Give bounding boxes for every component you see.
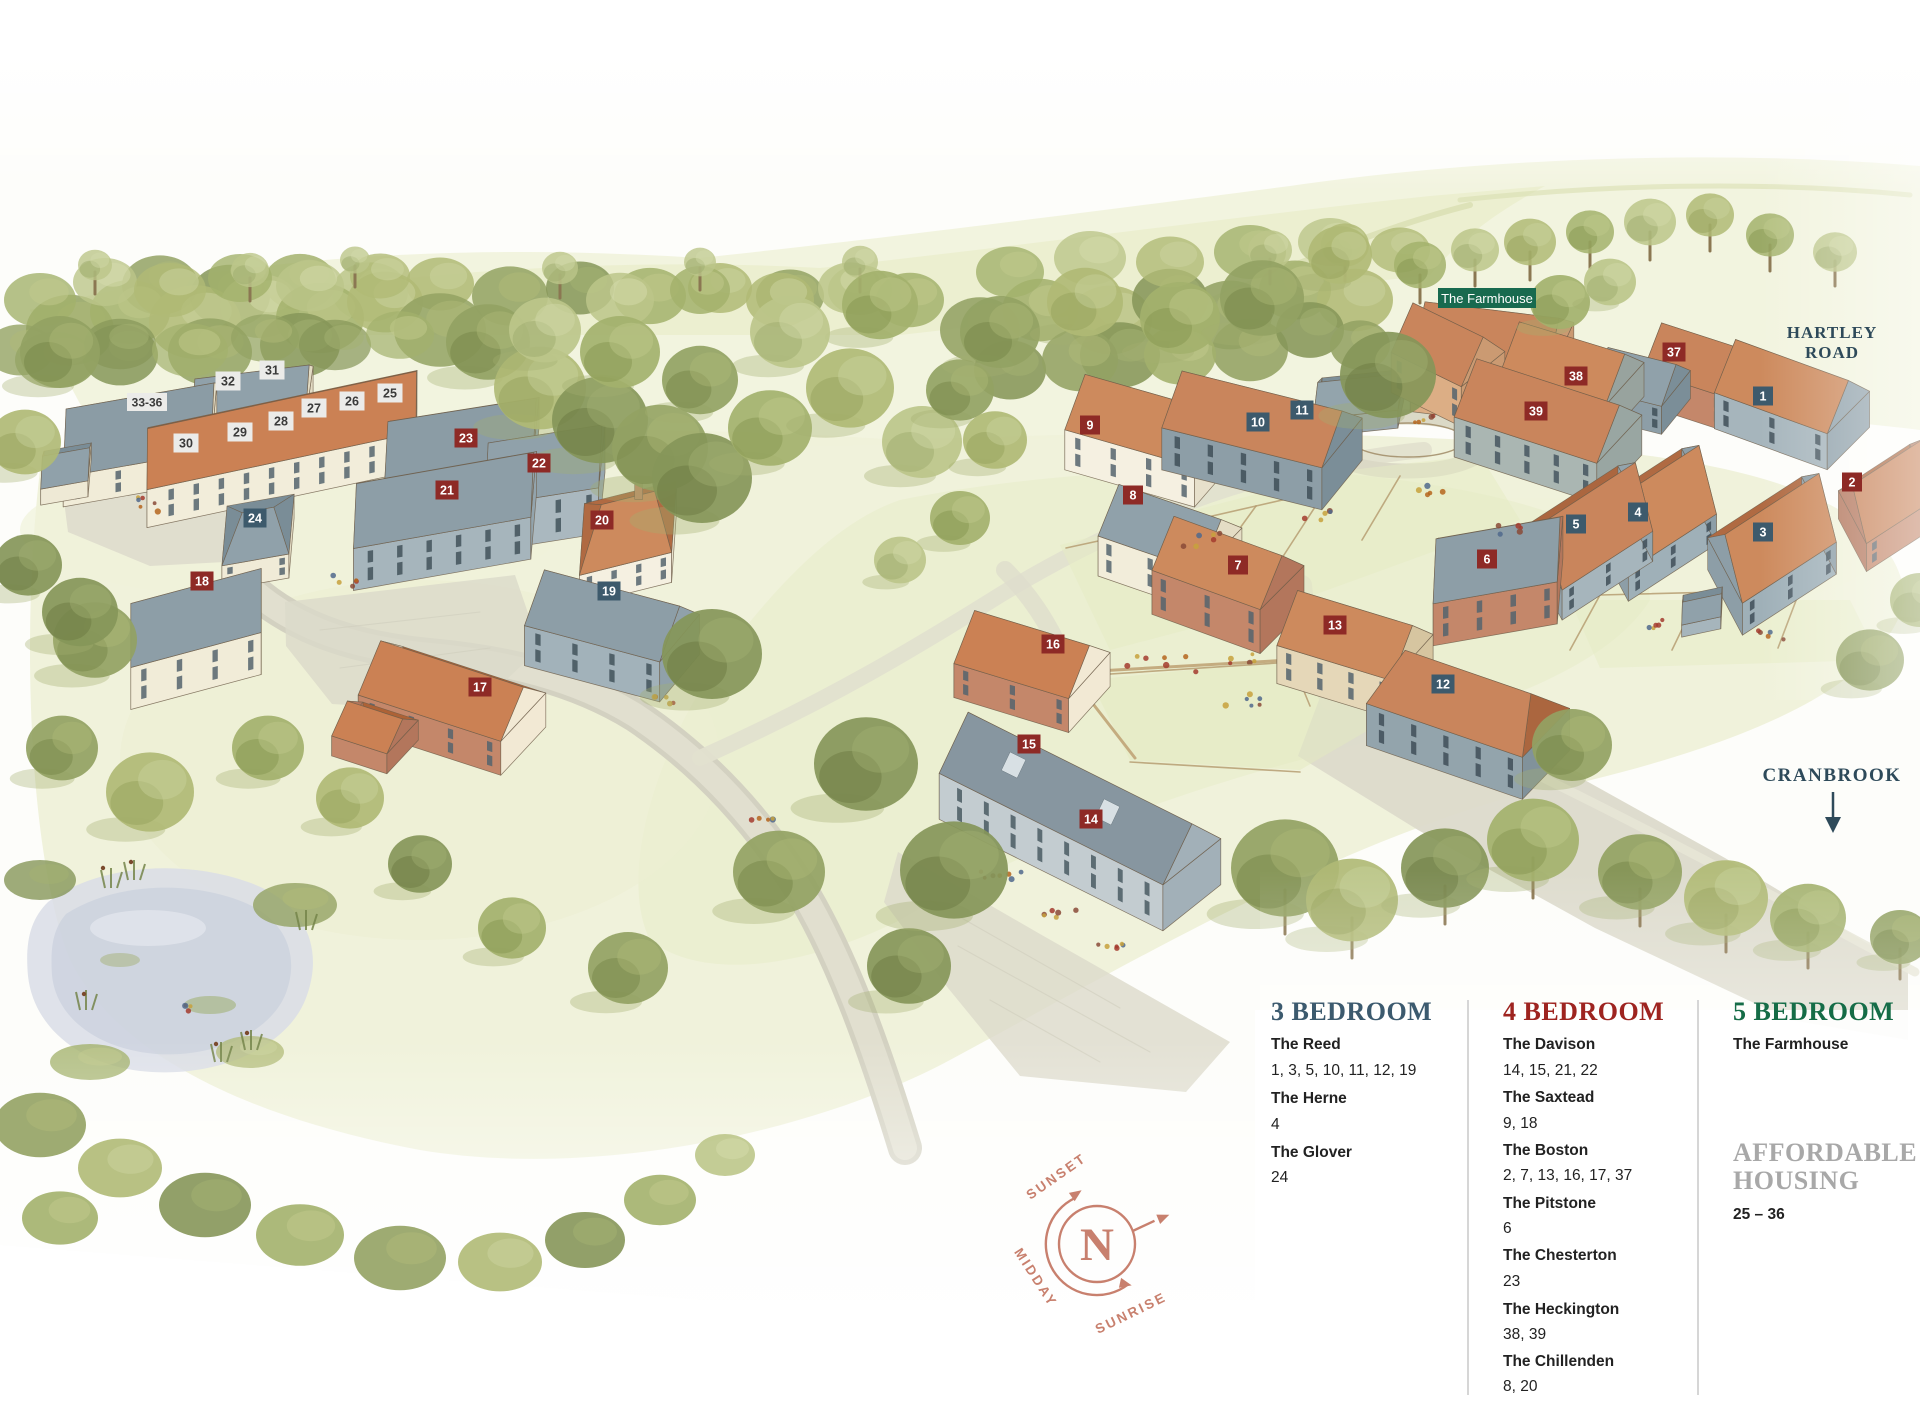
svg-text:8: 8 — [1130, 488, 1137, 502]
svg-text:24: 24 — [1271, 1169, 1289, 1186]
svg-text:11: 11 — [1295, 403, 1308, 417]
svg-text:13: 13 — [1328, 618, 1342, 632]
svg-text:8, 20: 8, 20 — [1503, 1378, 1538, 1395]
svg-text:25 – 36: 25 – 36 — [1733, 1206, 1785, 1223]
svg-text:25: 25 — [383, 386, 397, 400]
svg-text:24: 24 — [248, 511, 262, 525]
svg-text:The Glover: The Glover — [1271, 1144, 1352, 1161]
svg-text:19: 19 — [602, 584, 616, 598]
svg-text:14: 14 — [1084, 812, 1098, 826]
svg-text:2, 7, 13, 16, 17, 37: 2, 7, 13, 16, 17, 37 — [1503, 1167, 1632, 1184]
svg-text:29: 29 — [233, 425, 247, 439]
svg-text:14, 15, 21, 22: 14, 15, 21, 22 — [1503, 1062, 1598, 1079]
svg-text:The Heckington: The Heckington — [1503, 1301, 1619, 1318]
svg-text:16: 16 — [1046, 637, 1060, 651]
svg-text:The Farmhouse: The Farmhouse — [1441, 291, 1533, 306]
svg-text:4 BEDROOM: 4 BEDROOM — [1503, 997, 1664, 1026]
svg-text:The Saxtead: The Saxtead — [1503, 1089, 1594, 1106]
svg-text:The Herne: The Herne — [1271, 1090, 1347, 1107]
svg-text:21: 21 — [440, 483, 454, 497]
svg-text:9, 18: 9, 18 — [1503, 1115, 1537, 1132]
svg-text:The Boston: The Boston — [1503, 1142, 1588, 1159]
svg-text:6: 6 — [1484, 552, 1491, 566]
svg-text:22: 22 — [532, 456, 546, 470]
svg-text:CRANBROOK: CRANBROOK — [1762, 765, 1901, 786]
svg-text:The Farmhouse: The Farmhouse — [1733, 1036, 1849, 1053]
svg-text:HOUSING: HOUSING — [1733, 1166, 1859, 1195]
svg-text:AFFORDABLE: AFFORDABLE — [1733, 1138, 1917, 1167]
svg-text:1: 1 — [1760, 389, 1767, 403]
svg-text:38: 38 — [1569, 369, 1583, 383]
svg-text:23: 23 — [1503, 1273, 1520, 1290]
svg-text:26: 26 — [345, 394, 359, 408]
svg-text:20: 20 — [595, 513, 609, 527]
svg-text:The Reed: The Reed — [1271, 1036, 1341, 1053]
svg-text:5: 5 — [1573, 517, 1580, 531]
svg-text:The Chesterton: The Chesterton — [1503, 1247, 1617, 1264]
svg-text:28: 28 — [274, 414, 288, 428]
svg-text:3 BEDROOM: 3 BEDROOM — [1271, 997, 1432, 1026]
svg-text:37: 37 — [1667, 345, 1681, 359]
svg-text:1, 3, 5, 10, 11, 12, 19: 1, 3, 5, 10, 11, 12, 19 — [1271, 1062, 1416, 1079]
svg-text:12: 12 — [1436, 677, 1450, 691]
svg-text:5 BEDROOM: 5 BEDROOM — [1733, 997, 1894, 1026]
svg-text:33-36: 33-36 — [132, 395, 163, 409]
svg-text:39: 39 — [1529, 404, 1543, 418]
svg-text:ROAD: ROAD — [1805, 343, 1859, 362]
svg-text:9: 9 — [1087, 418, 1094, 432]
svg-text:27: 27 — [307, 401, 321, 415]
svg-text:17: 17 — [473, 680, 487, 694]
svg-text:3: 3 — [1760, 525, 1767, 539]
svg-text:31: 31 — [265, 363, 279, 377]
svg-text:30: 30 — [179, 436, 193, 450]
svg-text:The Pitstone: The Pitstone — [1503, 1195, 1596, 1212]
svg-text:23: 23 — [459, 431, 473, 445]
svg-text:2: 2 — [1849, 475, 1856, 489]
svg-text:7: 7 — [1235, 558, 1242, 572]
svg-text:10: 10 — [1251, 415, 1265, 429]
svg-text:18: 18 — [195, 574, 209, 588]
svg-text:HARTLEY: HARTLEY — [1787, 323, 1877, 342]
svg-text:The Chillenden: The Chillenden — [1503, 1353, 1614, 1370]
svg-text:N: N — [1080, 1219, 1114, 1271]
svg-text:32: 32 — [221, 374, 235, 388]
svg-text:The Davison: The Davison — [1503, 1036, 1595, 1053]
svg-text:6: 6 — [1503, 1220, 1512, 1237]
svg-text:4: 4 — [1271, 1116, 1280, 1133]
svg-text:4: 4 — [1635, 505, 1642, 519]
svg-text:38, 39: 38, 39 — [1503, 1326, 1546, 1343]
svg-text:15: 15 — [1022, 737, 1036, 751]
